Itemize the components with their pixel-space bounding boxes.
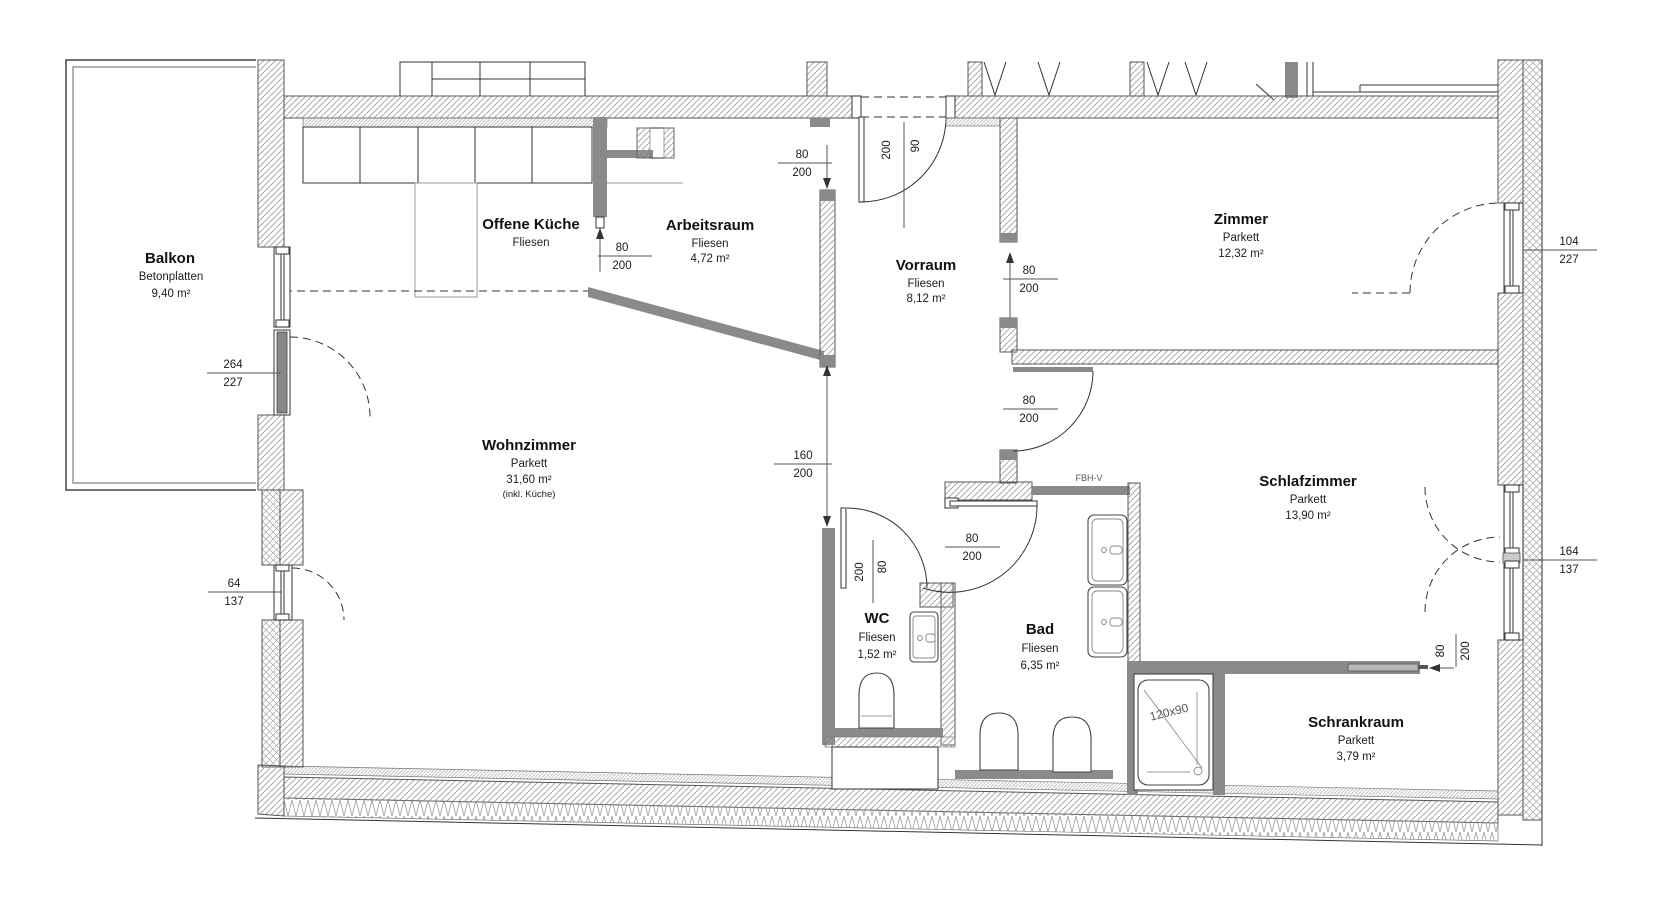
wc-name: WC [865, 610, 890, 627]
dim-wohnopen-a: 160 [793, 450, 812, 462]
kueche-floor: Fliesen [512, 237, 549, 249]
zimmer-area: 12,32 m² [1218, 248, 1264, 260]
balkon-name: Balkon [145, 250, 195, 267]
dim-wohnopen-b: 200 [793, 468, 812, 480]
room-label-wohnzimmer: Wohnzimmer Parkett 31,60 m² (inkl. Küche… [482, 437, 576, 500]
bad-washbasin [1088, 515, 1127, 585]
sliding-door-leaf [1348, 664, 1418, 671]
dim-wcdoor-b: 200 [854, 562, 866, 581]
door-jamb [852, 96, 861, 118]
dim-wohnwin-a: 64 [228, 578, 241, 590]
floor-plan-drawing: 200 90 [0, 0, 1658, 906]
floor-plan-page: 200 90 [0, 0, 1658, 906]
wohnzimmer-name: Wohnzimmer [482, 437, 576, 454]
dim-entry-200: 200 [881, 140, 893, 159]
room-label-vorraum: Vorraum Fliesen 8,12 m² [896, 257, 957, 305]
wc-left-wall [822, 528, 835, 745]
schlafzimmer-area: 13,90 m² [1285, 510, 1331, 522]
dim-schlafdoor-a: 80 [1023, 395, 1036, 407]
schrankraum-floor: Parkett [1338, 735, 1375, 747]
dim-kueche-a: 80 [616, 242, 629, 254]
dim-entryopen-b: 200 [792, 167, 811, 179]
room-label-schrankraum: Schrankraum Parkett 3,79 m² [1308, 714, 1404, 763]
zimmer-window-swing [1410, 203, 1497, 293]
vorraum-area: 8,12 m² [907, 293, 946, 305]
wohnzimmer-note: (inkl. Küche) [503, 489, 556, 500]
balcony-window [274, 247, 290, 327]
dim-entryopen-a: 80 [796, 149, 809, 161]
dim-zimdoor-b: 200 [1019, 283, 1038, 295]
kitchen-island [415, 183, 477, 297]
arbeitsraum-area: 4,72 m² [691, 253, 730, 265]
bad-area: 6,35 m² [1021, 660, 1060, 672]
zimmer-floor: Parkett [1223, 232, 1260, 244]
schlaf-window-swing [1425, 537, 1500, 612]
kueche-name: Offene Küche [482, 216, 580, 233]
dim-zimwin-b: 227 [1559, 254, 1578, 266]
wohnzimmer-floor: Parkett [511, 458, 548, 470]
dim-kueche-b: 200 [612, 260, 631, 272]
dim-wohnwin-b: 137 [224, 596, 243, 608]
arbeitsraum-name: Arbeitsraum [666, 217, 754, 234]
dim-zimdoor-a: 80 [1023, 265, 1036, 277]
room-label-wc: WC Fliesen 1,52 m² [858, 610, 897, 661]
closet-v-mark [1147, 62, 1169, 95]
bad-door-leaf [950, 501, 1037, 506]
kitchen-wall-post [593, 117, 607, 217]
bad-washbasin [1088, 587, 1127, 657]
arbeitsraum-floor: Fliesen [691, 238, 728, 250]
schlaf-door-swing [1013, 371, 1093, 451]
room-label-zimmer: Zimmer Parkett 12,32 m² [1214, 211, 1268, 260]
dim-balkon-b: 227 [223, 377, 242, 389]
dim-schlafwin-a: 164 [1559, 546, 1579, 558]
entrance-door-leaf [859, 117, 864, 202]
schlafzimmer-floor: Parkett [1290, 494, 1327, 506]
dim-wcdoor-a: 80 [877, 561, 889, 574]
wc-area: 1,52 m² [858, 649, 897, 661]
schlaf-window-swing [1425, 487, 1500, 562]
wc-sink [910, 612, 938, 662]
room-label-schlafzimmer: Schlafzimmer Parkett 13,90 m² [1259, 473, 1357, 522]
room-label-arbeitsraum: Arbeitsraum Fliesen 4,72 m² [666, 217, 754, 265]
vorraum-name: Vorraum [896, 257, 957, 274]
dim-baddoor-a: 80 [966, 533, 979, 545]
dim-entry-90: 90 [910, 140, 922, 153]
fbhv-unit [1032, 486, 1130, 495]
balcony-door-swing [290, 337, 370, 417]
dim-schrank-b: 200 [1460, 641, 1472, 660]
closet-v-mark [984, 62, 1006, 95]
schrankraum-area: 3,79 m² [1337, 751, 1376, 763]
wc-door-leaf [841, 508, 846, 588]
wohnzimmer-area: 31,60 m² [506, 474, 552, 486]
zimmer-name: Zimmer [1214, 211, 1268, 228]
room-label-balkon: Balkon Betonplatten 9,40 m² [139, 250, 204, 300]
wc-toilet [859, 673, 894, 728]
dim-schlafdoor-b: 200 [1019, 413, 1038, 425]
closet-v-mark [1185, 62, 1207, 95]
door-jamb [946, 96, 955, 118]
dim-zimwin-a: 104 [1559, 236, 1579, 248]
balkon-area: 9,40 m² [152, 288, 191, 300]
bad-bidet [1053, 717, 1091, 772]
dim-balkon-a: 264 [223, 359, 243, 371]
balkon-floor: Betonplatten [139, 271, 204, 283]
room-label-bad: Bad Fliesen 6,35 m² [1021, 621, 1060, 672]
bad-name: Bad [1026, 621, 1054, 638]
bad-floor: Fliesen [1021, 643, 1058, 655]
kitchen-counter [303, 127, 592, 183]
shaft [664, 128, 674, 158]
fbhv-label: FBH-V [1076, 473, 1103, 483]
bad-toilet [980, 713, 1018, 770]
living-window-swing [292, 568, 344, 620]
schrankraum-name: Schrankraum [1308, 714, 1404, 731]
dim-schlafwin-b: 137 [1559, 564, 1578, 576]
schlaf-door-leaf [1013, 367, 1093, 372]
room-label-kueche: Offene Küche Fliesen [482, 216, 580, 249]
dim-baddoor-b: 200 [962, 551, 981, 563]
shaft [637, 128, 650, 158]
bad-door-swing [923, 505, 1037, 592]
schlafzimmer-name: Schlafzimmer [1259, 473, 1357, 490]
dim-schrank-a: 80 [1435, 645, 1447, 658]
exterior-structures [400, 62, 1498, 100]
closet-v-mark [1038, 62, 1060, 95]
diagonal-knee-wall [588, 287, 824, 361]
vorraum-floor: Fliesen [907, 278, 944, 290]
wc-floor: Fliesen [858, 632, 895, 644]
